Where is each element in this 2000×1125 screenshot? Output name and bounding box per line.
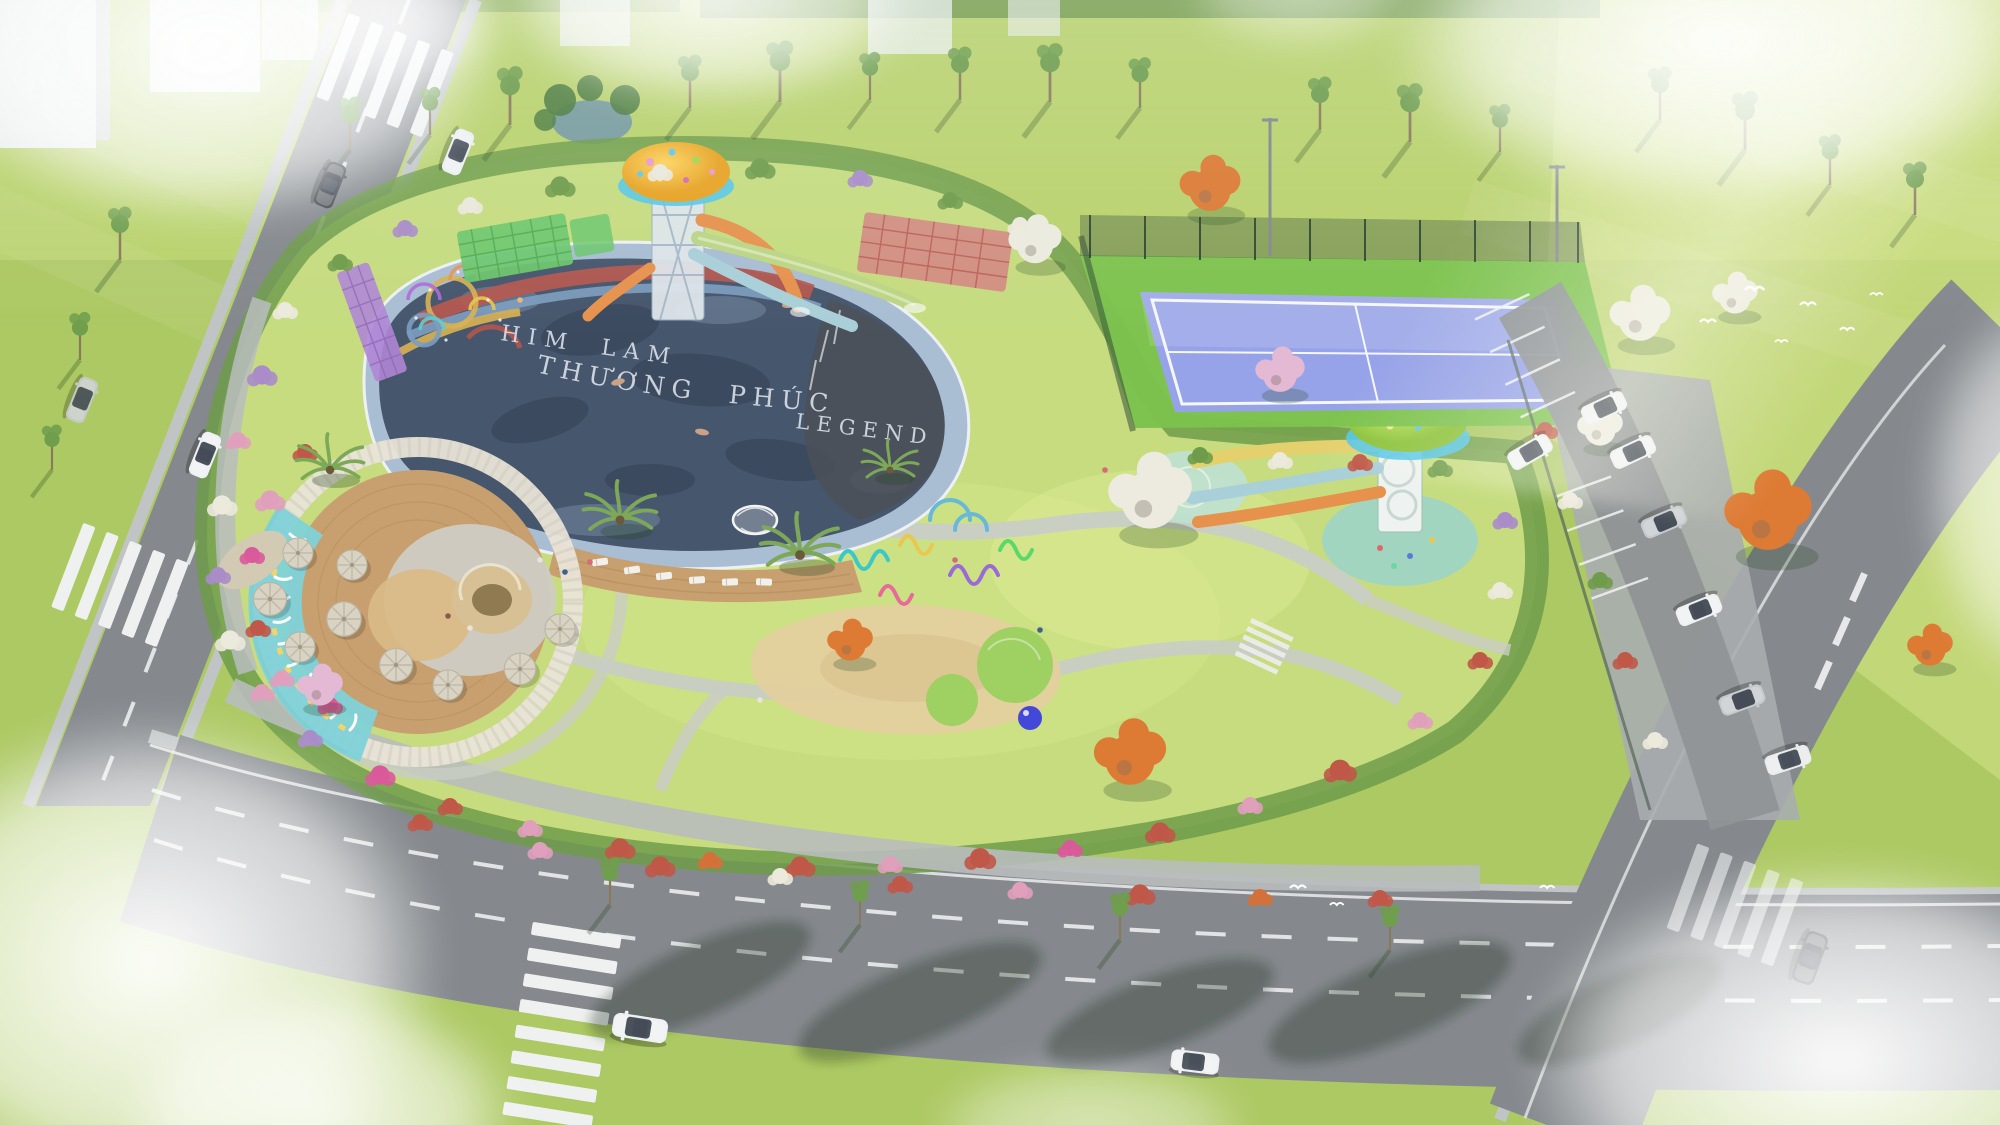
slide-splash [904,303,926,313]
tree-canopy [610,85,640,115]
person [952,557,958,563]
play-mound [926,674,978,726]
person [445,613,451,619]
slide-splash [790,307,810,317]
lounger [689,576,705,584]
park-aerial-scene: HIM LAM THƯƠNG PHÚC LEGEND [0,0,2000,1125]
building [868,0,952,54]
tree-canopy [577,75,603,101]
person [517,297,523,303]
person [757,697,763,703]
court-fence [1080,215,1585,262]
play-dome [1018,706,1042,730]
trellis-panel [569,213,615,257]
building [150,0,260,92]
tree-canopy [534,109,556,131]
building [262,0,318,60]
person [1102,467,1108,473]
person [587,559,593,565]
person [562,569,568,575]
dome-highlight [1023,710,1029,716]
treeline-top [700,0,1600,18]
lounger [756,578,772,586]
building [0,0,96,148]
person [467,625,473,631]
person [1037,627,1043,633]
funnel-mouth [472,584,512,616]
building-side [96,0,110,140]
aerial-park-rendering: HIM LAM THƯƠNG PHÚC LEGEND [0,0,2000,1125]
building [560,0,630,46]
building [1008,0,1060,36]
lounger [722,578,738,586]
person [537,557,543,563]
